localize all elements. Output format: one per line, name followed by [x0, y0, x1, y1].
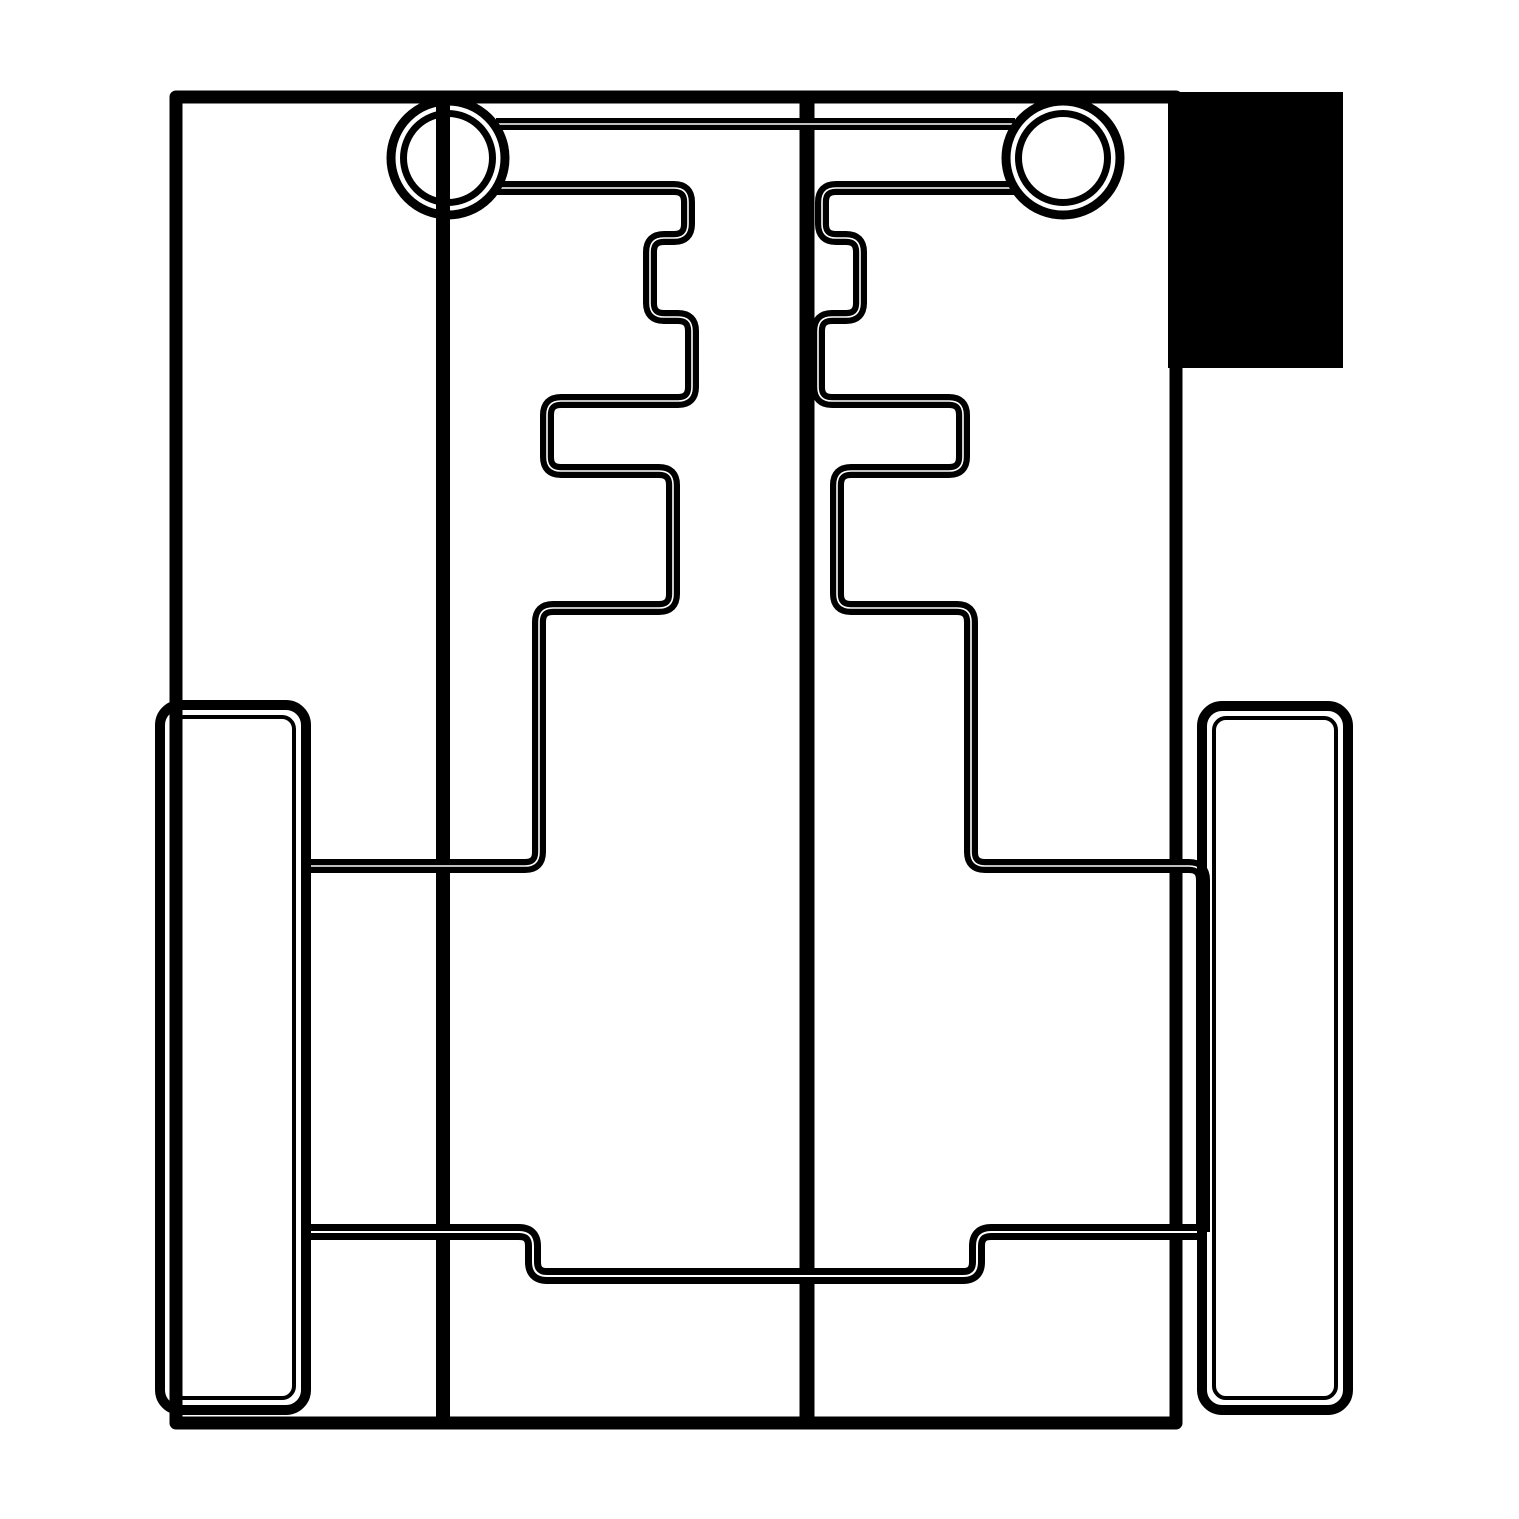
right-bracket-outline	[818, 188, 1203, 1232]
corner-fill-block	[1168, 92, 1343, 368]
left-wheel-inner-line	[172, 717, 294, 1398]
left-bracket-outline	[302, 188, 692, 866]
right-hub-outer-circle	[1006, 101, 1120, 215]
right-bracket-outline-kerf-hairline	[818, 188, 1203, 1232]
technical-drawing-canvas	[0, 0, 1519, 1519]
left-bracket-outline-kerf-hairline	[302, 188, 692, 866]
right-wheel-outline	[1202, 706, 1348, 1410]
right-hub-inner-circle	[1019, 114, 1108, 203]
drawing-page	[0, 0, 1519, 1519]
right-wheel-inner-line	[1214, 718, 1336, 1398]
